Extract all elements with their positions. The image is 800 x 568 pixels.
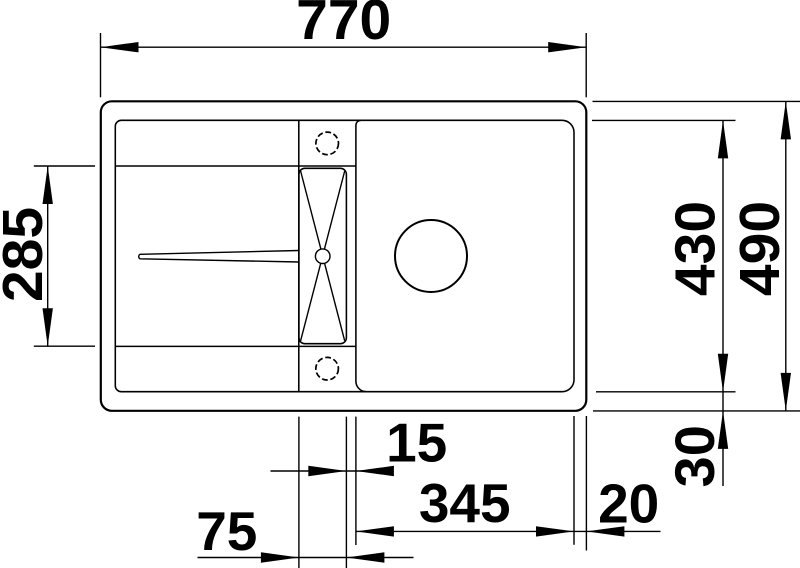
svg-text:345: 345: [419, 472, 511, 534]
svg-text:20: 20: [598, 472, 659, 534]
svg-text:30: 30: [663, 425, 726, 487]
svg-text:490: 490: [728, 201, 792, 296]
svg-text:430: 430: [664, 201, 728, 296]
svg-text:75: 75: [196, 500, 257, 562]
svg-text:770: 770: [296, 0, 391, 52]
svg-text:15: 15: [386, 411, 447, 473]
svg-text:285: 285: [0, 207, 55, 302]
